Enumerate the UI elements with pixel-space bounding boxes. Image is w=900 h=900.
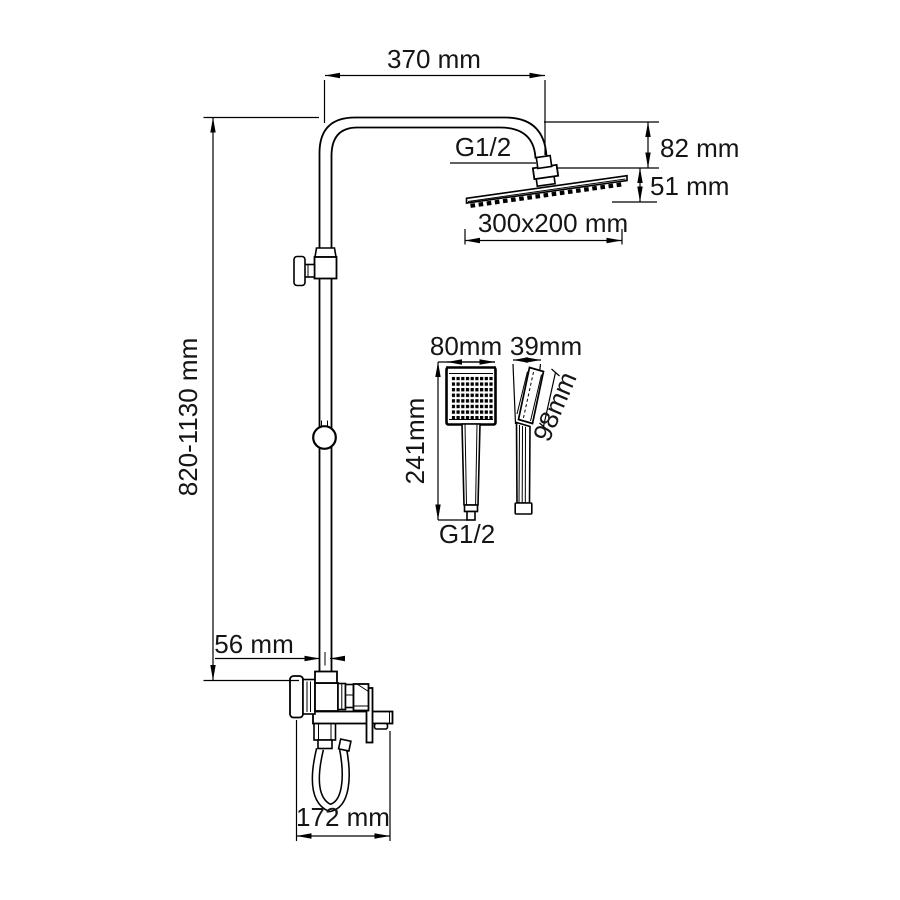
label-g12-overhead: G1/2: [450, 132, 536, 163]
handshower-nozzle-grid: [452, 377, 494, 421]
shower-hose: [316, 739, 351, 808]
dim-39-label: 39mm: [510, 331, 582, 361]
dim-80-label: 80mm: [430, 331, 502, 361]
hose-outlet: [314, 723, 336, 740]
tub-spout: [313, 712, 393, 724]
spout-end-cap: [375, 724, 388, 730]
label-g12-handshower: G1/2: [439, 519, 495, 549]
handshower-side-view: [515, 368, 543, 515]
hose-end-fitting: [339, 739, 351, 751]
mixer-body: [315, 683, 338, 711]
g12-hand-label: G1/2: [439, 519, 495, 549]
dimension-370mm: 370 mm: [325, 44, 546, 155]
handshower-front-view: [447, 368, 496, 521]
pole-base-collar: [315, 672, 337, 684]
dimension-height-820-1130: 820-1130 mm: [173, 118, 319, 681]
shower-drawing-page: 370 mm 820-1130 mm 82 mm 51 mm G1/2 300x…: [0, 0, 900, 900]
dim-82-label: 82 mm: [660, 133, 739, 163]
dim-241-label: 241mm: [400, 398, 430, 485]
dimension-56mm: 56 mm: [214, 629, 344, 666]
mixer-assembly: [290, 672, 393, 809]
shower-technical-drawing: 370 mm 820-1130 mm 82 mm 51 mm G1/2 300x…: [0, 0, 900, 900]
dim-51-label: 51 mm: [650, 171, 729, 201]
dimension-80mm: 80mm: [430, 331, 502, 371]
dimension-82mm: 82 mm: [544, 122, 739, 168]
dim-height-label: 820-1130 mm: [173, 338, 203, 497]
wall-bracket: [294, 248, 337, 286]
diverter-knob: [313, 421, 336, 449]
dim-300x200-label: 300x200 mm: [478, 208, 628, 238]
dimension-300x200: 300x200 mm: [465, 208, 628, 245]
mixer-wall-flange: [290, 676, 303, 718]
dim-56-label: 56 mm: [214, 629, 293, 659]
cartridge-housing: [354, 684, 369, 711]
dim-370-label: 370 mm: [387, 44, 481, 74]
dim-172-label: 172 mm: [296, 802, 390, 832]
dimension-51mm: 51 mm: [612, 168, 729, 202]
head-g12-nipple: [536, 156, 551, 169]
g12-top-label: G1/2: [455, 132, 511, 162]
handshower-handle: [462, 424, 480, 505]
